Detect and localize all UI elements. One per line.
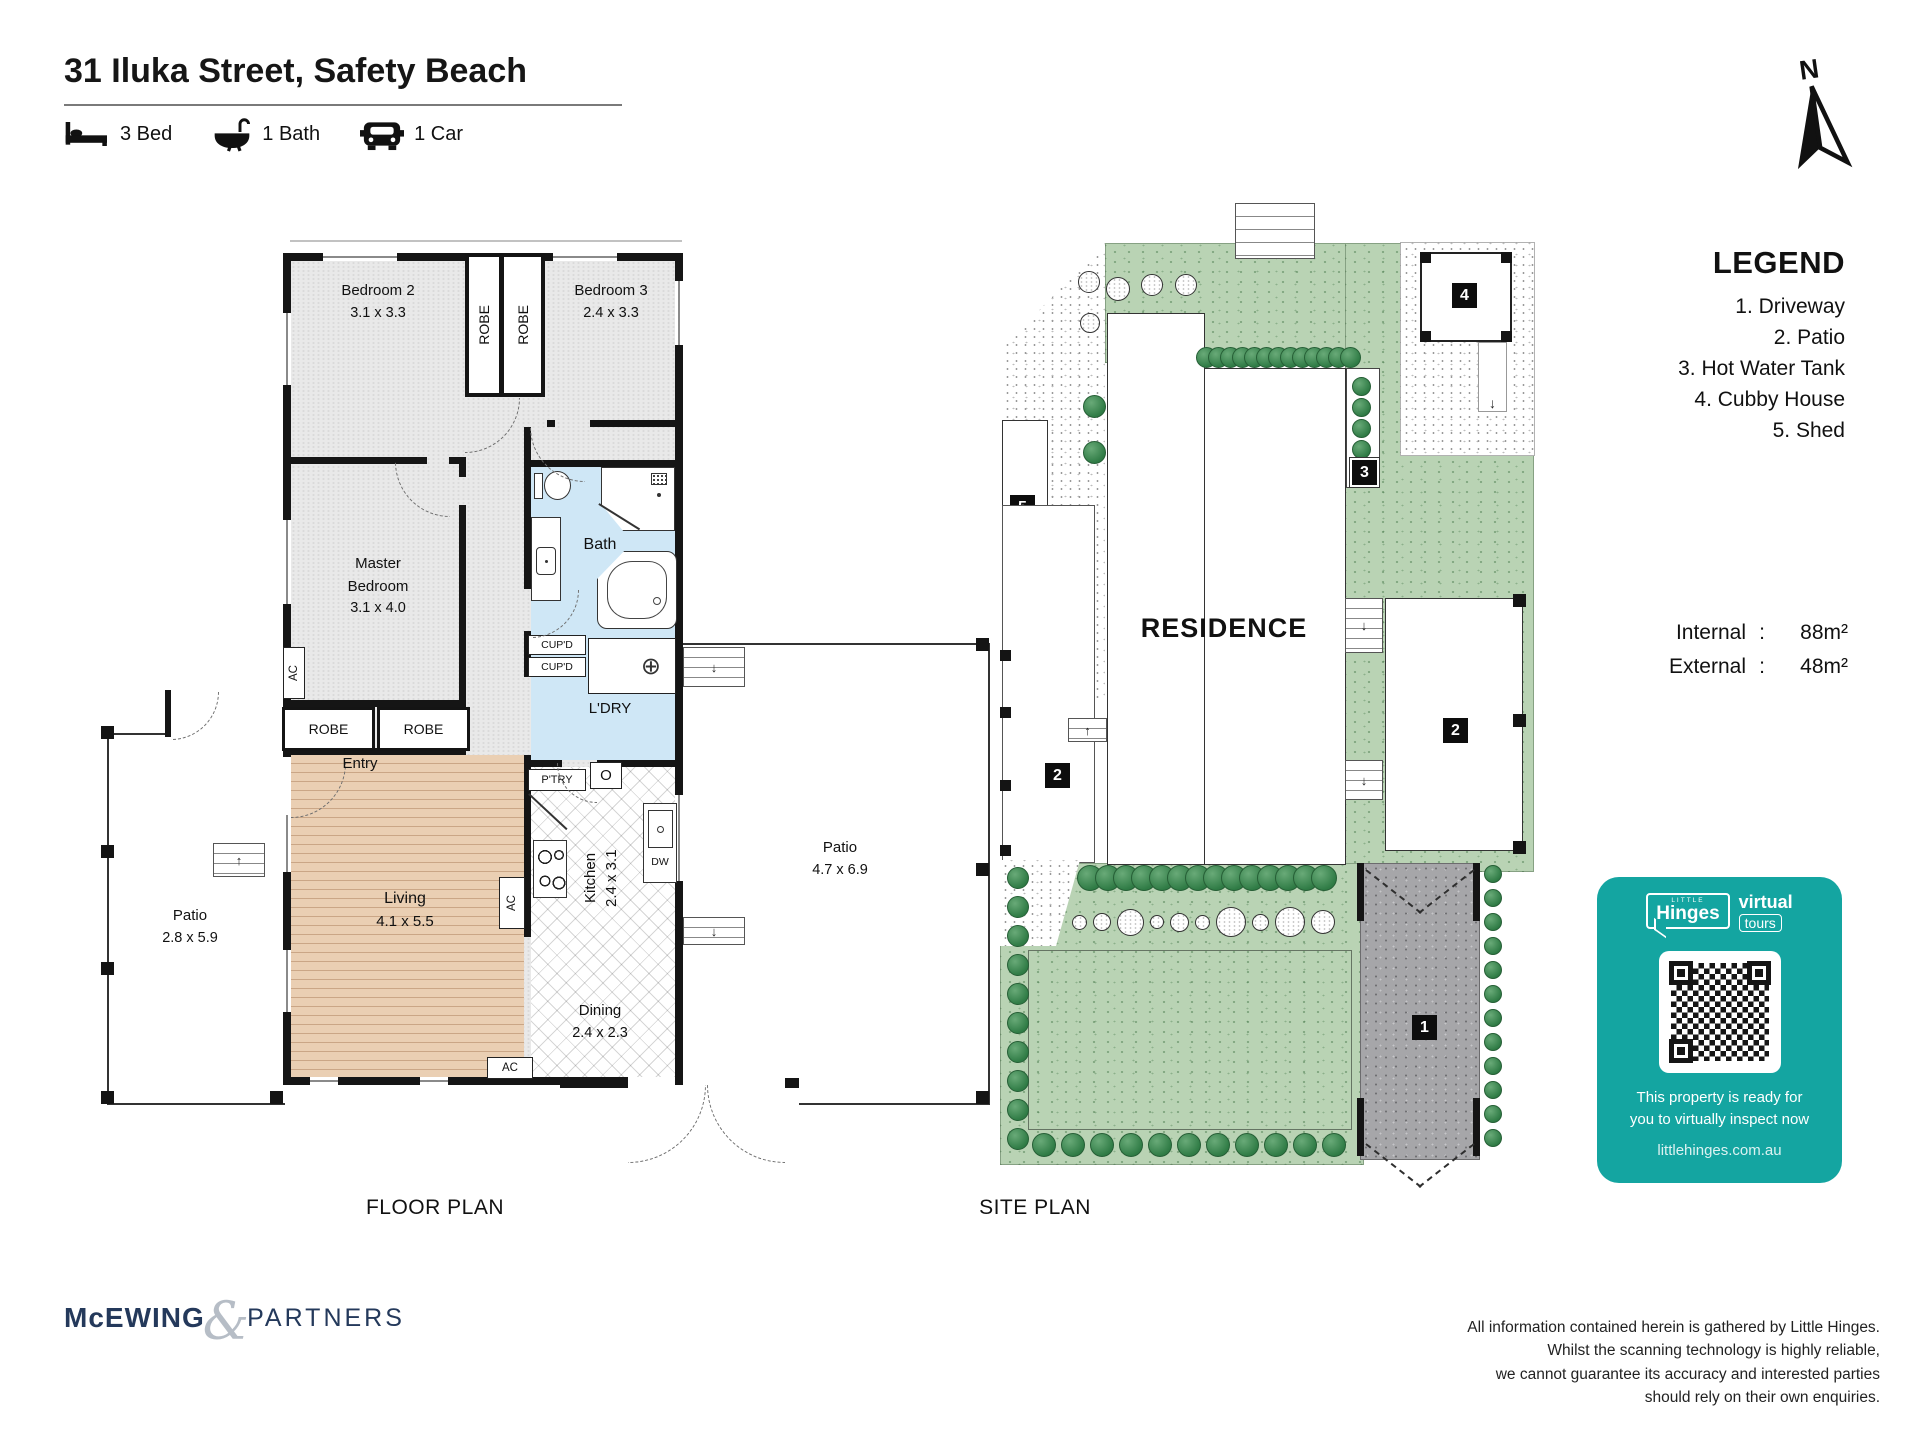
patio-boundary — [799, 1103, 990, 1105]
room-patio-left: Patio 2.8 x 5.9 — [115, 905, 265, 949]
marker-patio-rear: 2 — [1443, 718, 1468, 743]
patio-post — [976, 1091, 989, 1104]
bush — [1484, 1129, 1502, 1147]
site-plan: 5 4 ↓ RESIDENCE 3 ↓ ↓ ↑ 2 2 — [1000, 195, 1545, 1180]
internal-area-value: 88m² — [1778, 616, 1848, 650]
disclaimer-line: should rely on their own enquiries. — [1345, 1386, 1880, 1409]
room-dims: 4.1 x 5.5 — [318, 911, 492, 934]
patio-post — [1513, 594, 1526, 607]
bush — [1293, 1133, 1317, 1157]
shower-drain — [657, 493, 661, 497]
patio-boundary — [107, 1103, 285, 1105]
bush — [1083, 395, 1106, 418]
robe-label: ROBE — [309, 721, 349, 737]
wall — [459, 457, 466, 477]
bush — [1007, 1041, 1029, 1063]
wall — [560, 1078, 628, 1088]
legend-list: 1. Driveway 2. Patio 3. Hot Water Tank 4… — [1560, 291, 1845, 446]
site-steps — [1235, 203, 1315, 259]
bath-icon — [212, 116, 252, 152]
legend-item: 5. Shed — [1560, 415, 1845, 446]
badge-line1: This property is ready for — [1597, 1087, 1842, 1109]
room-name: Patio — [765, 837, 915, 860]
room-dims: 2.8 x 5.9 — [115, 928, 265, 950]
shrub — [1078, 271, 1100, 293]
marker-cubby: 4 — [1452, 283, 1477, 308]
shower-head-icon — [651, 473, 667, 485]
patio-post — [976, 863, 989, 876]
room-name: Master — [291, 553, 465, 576]
bush — [1235, 1133, 1259, 1157]
colon: : — [1754, 650, 1770, 684]
bush — [1007, 1128, 1029, 1150]
bed-icon — [64, 118, 110, 150]
stove — [533, 840, 567, 898]
patio-post — [1513, 714, 1526, 727]
wall — [785, 1078, 799, 1088]
robe-label: ROBE — [515, 305, 531, 345]
tag-virtual: virtual — [1739, 893, 1793, 912]
ac-unit: AC — [487, 1057, 533, 1079]
bush — [1484, 937, 1502, 955]
robe-closet: ROBE — [377, 707, 470, 751]
room-name: Bedroom — [291, 576, 465, 599]
bush — [1484, 889, 1502, 907]
room-name: Bath — [584, 536, 617, 553]
wall — [590, 420, 683, 427]
bush — [1484, 1033, 1502, 1051]
patio-steps: ↑ — [213, 843, 265, 877]
disclaimer-line: Whilst the scanning technology is highly… — [1345, 1339, 1880, 1362]
residence-label: RESIDENCE — [1110, 613, 1338, 644]
hedge-row — [1205, 347, 1361, 368]
bush — [1177, 1133, 1201, 1157]
external-area-label: External — [1620, 650, 1746, 684]
bush — [1264, 1133, 1288, 1157]
room-dims: 4.7 x 6.9 — [765, 860, 915, 882]
vanity-basin — [536, 547, 556, 575]
marker-patio-side: 2 — [1045, 763, 1070, 788]
patio-post — [101, 1091, 114, 1104]
cupboard-label: CUP'D — [541, 661, 573, 673]
colon: : — [1754, 616, 1770, 650]
room-bedroom2: Bedroom 2 3.1 x 3.3 — [291, 280, 465, 324]
site-steps: ↓ — [1345, 598, 1383, 653]
patio-boundary — [107, 733, 109, 1105]
wall — [524, 467, 531, 589]
marker-driveway: 1 — [1412, 1015, 1437, 1040]
little-hinges-logo: LITTLE Hinges virtual tours — [1597, 893, 1842, 933]
eave-line — [290, 240, 682, 242]
gate-post — [1473, 863, 1480, 921]
brand-hinges: Hinges — [1656, 904, 1719, 923]
tag-tours: tours — [1739, 914, 1782, 932]
shrub-row — [1072, 907, 1335, 937]
wall — [283, 700, 466, 707]
bush — [1484, 1009, 1502, 1027]
wall — [524, 755, 531, 767]
bush — [1083, 441, 1106, 464]
bush — [1484, 1105, 1502, 1123]
car-icon — [360, 117, 404, 151]
room-bath: Bath — [565, 533, 635, 557]
patio-steps: ↓ — [683, 647, 745, 687]
robe-label: ROBE — [476, 305, 492, 345]
room-laundry: L'DRY — [545, 698, 675, 721]
window — [675, 281, 683, 345]
room-name: Entry — [342, 755, 377, 772]
patio-post — [101, 726, 114, 739]
residence-block — [1107, 313, 1205, 865]
agency-logo: McEWING & PARTNERS — [64, 1302, 405, 1334]
room-bedroom3: Bedroom 3 2.4 x 3.3 — [547, 280, 675, 324]
feature-row: 3 Bed 1 Bath 1 Car — [64, 116, 463, 152]
room-dims: 2.4 x 3.1 — [601, 813, 622, 943]
ac-label: AC — [288, 665, 300, 681]
patio-post — [976, 638, 989, 651]
cupboard-label: CUP'D — [541, 639, 573, 651]
north-arrow: N — [1772, 50, 1862, 190]
bush-column — [1484, 865, 1502, 1153]
bush — [1484, 865, 1502, 883]
legend-item: 4. Cubby House — [1560, 384, 1845, 415]
agency-name: McEWING — [64, 1302, 205, 1334]
gate-post — [1357, 863, 1364, 921]
room-name: L'DRY — [589, 700, 632, 717]
robe-label: ROBE — [404, 721, 444, 737]
room-living: Living 4.1 x 5.5 — [318, 887, 492, 934]
disclaimer-line: All information contained herein is gath… — [1345, 1316, 1880, 1339]
patio-boundary — [683, 643, 990, 645]
window — [283, 520, 291, 604]
cubby-path: ↓ — [1478, 342, 1507, 412]
window — [283, 950, 291, 1012]
room-entry: Entry — [325, 755, 395, 772]
internal-area-label: Internal — [1620, 616, 1746, 650]
wall — [165, 690, 171, 737]
bush — [1484, 961, 1502, 979]
bush — [1484, 985, 1502, 1003]
shrub — [1175, 274, 1197, 296]
hedge-row — [1032, 1133, 1351, 1157]
bush — [1311, 865, 1337, 891]
legend-item: 3. Hot Water Tank — [1560, 353, 1845, 384]
ac-unit: AC — [499, 877, 525, 929]
bush — [1007, 925, 1029, 947]
window — [323, 253, 397, 261]
room-dims: 3.1 x 4.0 — [291, 598, 465, 620]
floor-plan: ROBE ROBE ROBE ROBE CUP'D CUP'D ⊕ P'TRY … — [85, 195, 995, 1130]
bush — [1484, 913, 1502, 931]
window — [420, 1077, 448, 1085]
disclaimer: All information contained herein is gath… — [1345, 1316, 1880, 1409]
bathtub-drain — [653, 597, 661, 605]
room-dims: 2.4 x 3.3 — [547, 303, 675, 325]
bush — [1352, 440, 1371, 459]
laundry-sink-icon: ⊕ — [641, 652, 661, 681]
room-dims: 2.4 x 2.3 — [535, 1023, 665, 1045]
agency-partners: PARTNERS — [247, 1304, 405, 1333]
bush — [1007, 1070, 1029, 1092]
bush — [1206, 1133, 1230, 1157]
door-opening — [283, 757, 291, 815]
cupboard: CUP'D — [528, 635, 586, 655]
bush — [1352, 419, 1371, 438]
bush — [1484, 1057, 1502, 1075]
site-plan-caption: SITE PLAN — [925, 1196, 1145, 1220]
bush — [1340, 347, 1361, 368]
bush — [1007, 1099, 1029, 1121]
patio-post — [101, 962, 114, 975]
bush-column — [1352, 375, 1371, 459]
title-divider — [64, 104, 622, 106]
bush — [1119, 1133, 1143, 1157]
site-steps: ↓ — [1345, 760, 1383, 800]
badge-message: This property is ready for you to virtua… — [1597, 1087, 1842, 1131]
room-dining: Dining 2.4 x 2.3 — [535, 1000, 665, 1044]
robe-closet: ROBE — [282, 707, 375, 751]
wall — [675, 253, 683, 1085]
room-kitchen: Kitchen 2.4 x 3.1 — [580, 813, 622, 943]
robe-closet: ROBE — [500, 253, 545, 397]
qr-finder — [1669, 1039, 1693, 1063]
door-arc — [123, 644, 219, 740]
toilet-tank — [534, 473, 543, 499]
disclaimer-line: we cannot guarantee its accuracy and int… — [1345, 1363, 1880, 1386]
bush — [1352, 377, 1371, 396]
legend-item: 1. Driveway — [1560, 291, 1845, 322]
wall — [524, 767, 531, 937]
bush — [1032, 1133, 1056, 1157]
bush-column — [1007, 867, 1029, 1157]
room-name: Dining — [535, 1000, 665, 1023]
hinges-bubble: LITTLE Hinges — [1646, 893, 1729, 929]
qr-finder — [1669, 961, 1693, 985]
window — [310, 1077, 338, 1085]
qr-finder — [1747, 961, 1771, 985]
bush — [1007, 954, 1029, 976]
kitchen-sink — [648, 810, 673, 848]
area-summary: Internal : 88m² External : 48m² — [1620, 616, 1848, 684]
floor-plan-caption: FLOOR PLAN — [325, 1196, 545, 1220]
room-name: Patio — [115, 905, 265, 928]
room-name: Kitchen — [580, 813, 601, 943]
bush — [1007, 896, 1029, 918]
room-master: Master Bedroom 3.1 x 4.0 — [291, 553, 465, 620]
bush — [1090, 1133, 1114, 1157]
dishwasher-label: DW — [644, 856, 676, 868]
laundry-trough: ⊕ — [588, 638, 676, 694]
north-label: N — [1797, 53, 1820, 85]
lawn-inner-border — [1028, 950, 1352, 1130]
dishwasher: DW — [643, 803, 677, 883]
cupboard: CUP'D — [528, 657, 586, 677]
bathtub-inner — [607, 561, 667, 619]
driveway — [1360, 863, 1480, 1160]
bath-count: 1 Bath — [262, 123, 320, 146]
gate-post — [1357, 1098, 1364, 1156]
qr-code — [1659, 951, 1781, 1073]
wall-mark — [1000, 845, 1011, 856]
ac-label: AC — [506, 895, 518, 911]
window — [283, 313, 291, 385]
oven-label: O — [600, 767, 612, 784]
room-name: Bedroom 3 — [547, 280, 675, 303]
wall-mark — [1000, 707, 1011, 718]
ac-label: AC — [502, 1062, 518, 1074]
room-patio-right: Patio 4.7 x 6.9 — [765, 837, 915, 881]
window — [283, 810, 291, 872]
virtual-tour-badge: LITTLE Hinges virtual tours This propert… — [1597, 877, 1842, 1183]
legend-title: LEGEND — [1560, 245, 1845, 281]
legend: LEGEND 1. Driveway 2. Patio 3. Hot Water… — [1560, 245, 1845, 446]
gate-post — [1473, 1098, 1480, 1156]
bush — [1148, 1133, 1172, 1157]
shrub — [1080, 313, 1100, 333]
bush — [1352, 398, 1371, 417]
badge-url: littlehinges.com.au — [1597, 1142, 1842, 1159]
hedge-row — [1085, 865, 1337, 891]
ac-unit: AC — [283, 647, 305, 699]
bed-count: 3 Bed — [120, 123, 172, 146]
site-patio-left — [1002, 505, 1095, 863]
bush — [1007, 867, 1029, 889]
wall-mark — [1000, 650, 1011, 661]
wall-mark — [1000, 780, 1011, 791]
patio-boundary — [107, 733, 169, 735]
shrub — [1141, 274, 1163, 296]
marker-hot-water: 3 — [1350, 458, 1379, 487]
shrub — [1106, 277, 1130, 301]
patio-post — [270, 1091, 283, 1104]
robe-closet: ROBE — [465, 253, 503, 397]
room-name: Bedroom 2 — [291, 280, 465, 303]
bush — [1007, 1012, 1029, 1034]
bush — [1007, 983, 1029, 1005]
bush — [1322, 1133, 1346, 1157]
legend-item: 2. Patio — [1560, 322, 1845, 353]
room-name: Living — [318, 887, 492, 911]
patio-post — [101, 845, 114, 858]
bush — [1061, 1133, 1085, 1157]
badge-line2: you to virtually inspect now — [1597, 1109, 1842, 1131]
room-dims: 3.1 x 3.3 — [291, 303, 465, 325]
bush — [1484, 1081, 1502, 1099]
external-area-value: 48m² — [1778, 650, 1848, 684]
patio-post — [1513, 841, 1526, 854]
page-title: 31 Iluka Street, Safety Beach — [64, 52, 527, 91]
window — [553, 253, 617, 261]
site-steps: ↑ — [1068, 718, 1107, 742]
wall — [547, 420, 555, 427]
patio-steps: ↓ — [683, 917, 745, 945]
car-count: 1 Car — [414, 123, 463, 146]
